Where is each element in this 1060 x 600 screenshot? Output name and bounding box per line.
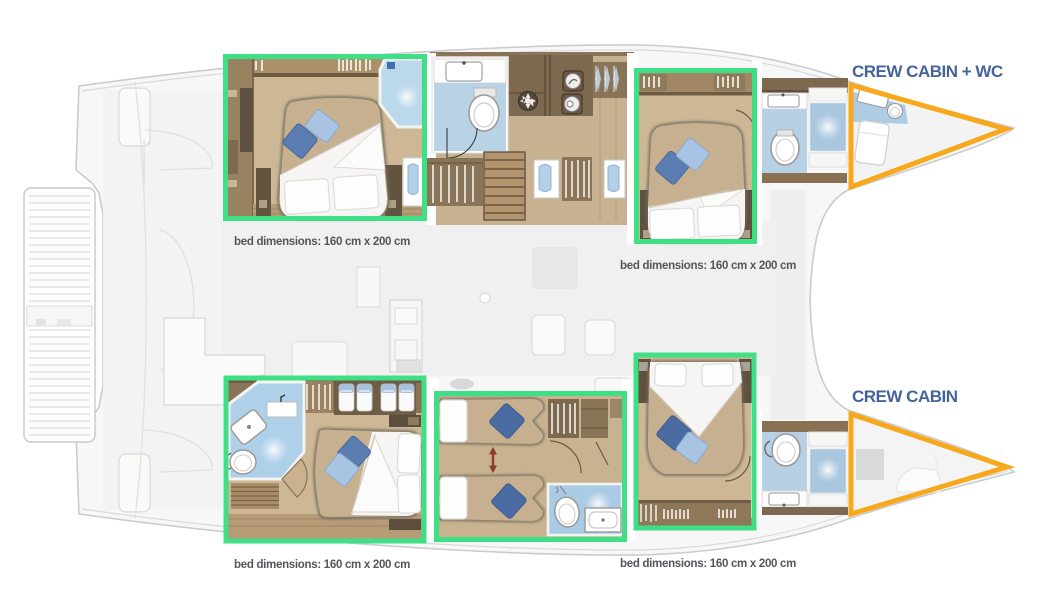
svg-text:bed dimensions: 160 cm x 200 c: bed dimensions: 160 cm x 200 cm [620,558,796,570]
svg-text:bed dimensions: 160 cm x 200 c: bed dimensions: 160 cm x 200 cm [234,559,410,571]
svg-text:bed dimensions: 160 cm x 200 c: bed dimensions: 160 cm x 200 cm [234,236,410,248]
svg-text:bed dimensions: 160 cm x 200 c: bed dimensions: 160 cm x 200 cm [620,260,796,272]
svg-text:CREW CABIN + WC: CREW CABIN + WC [852,62,1003,81]
svg-text:CREW CABIN: CREW CABIN [852,387,958,406]
